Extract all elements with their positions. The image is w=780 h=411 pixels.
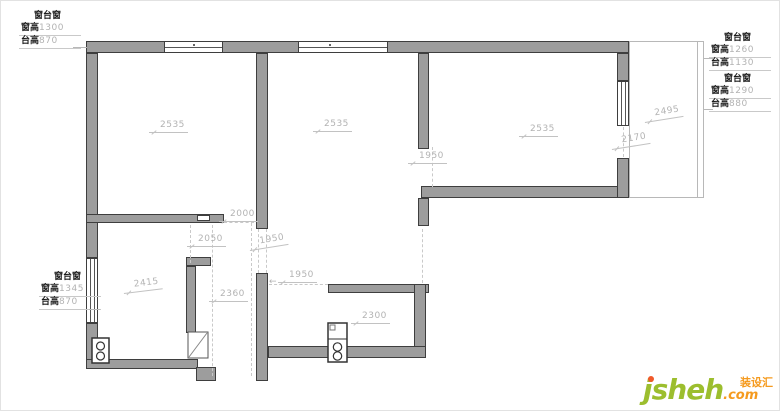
- wall-bottom-step: [196, 367, 216, 381]
- watermark-dot-icon: [648, 376, 654, 382]
- wall-right-upper: [617, 53, 629, 81]
- window-right: [617, 81, 629, 126]
- sill-height-row: 台高870: [19, 36, 81, 49]
- window-dot: [193, 44, 195, 46]
- window-label-bottom-left: 窗台窗 窗高1345 台高870: [39, 272, 101, 310]
- opening-dashed-edge: [422, 229, 423, 283]
- dim-room1: 2535: [149, 120, 188, 133]
- dim-hall-opening: 1950: [248, 232, 288, 251]
- window-glass-line: [621, 82, 622, 125]
- dim-hall-width: 2360: [209, 289, 248, 302]
- wall-left-upper: [86, 53, 98, 258]
- wall-room3-bottom: [421, 186, 629, 198]
- leader-line: [704, 109, 713, 110]
- window-height-row: 窗高1345: [39, 284, 101, 297]
- watermark-badge: 装设汇: [740, 374, 773, 390]
- opening-dashed-line: [269, 284, 328, 285]
- window-top-2: [298, 41, 388, 53]
- dim-hall-door: 2000: [219, 209, 258, 222]
- floor-plan: 2535 2535 2535 1950 2495 2170 2000 2050 …: [0, 0, 780, 411]
- kitchen-stove-fixture-icon: [327, 322, 349, 364]
- dim-kitchen-opening: 1950: [278, 270, 317, 283]
- dim-room3: 2535: [519, 124, 558, 137]
- window-height-row: 窗高1260: [709, 45, 771, 58]
- wall-room2-room3-divider: [418, 53, 429, 149]
- window-glass-line: [625, 82, 626, 125]
- window-glass-line: [299, 47, 387, 48]
- window-dot: [329, 44, 331, 46]
- window-label-title: 窗台窗: [709, 33, 771, 45]
- window-label-title: 窗台窗: [39, 272, 101, 284]
- dim-mid-opening: 1950: [408, 151, 447, 164]
- window-top-1: [164, 41, 223, 53]
- window-label-right-lower: 窗台窗 窗高1290 台高880: [709, 74, 771, 112]
- sill-height-row: 台高880: [709, 99, 771, 112]
- wall-below-room3: [418, 198, 429, 226]
- window-height-row: 窗高1300: [19, 23, 81, 36]
- watermark: jsheh.com 装设汇: [631, 372, 779, 410]
- wall-right-lower: [617, 158, 629, 198]
- window-label-title: 窗台窗: [19, 11, 81, 23]
- dimension-arrow-icon: ←: [269, 278, 277, 287]
- sill-height-row: 台高1130: [709, 58, 771, 71]
- door-leaf: [187, 331, 209, 359]
- wall-center-lower: [256, 273, 268, 381]
- wall-closet-vertical: [186, 266, 196, 333]
- window-label-title: 窗台窗: [709, 74, 771, 86]
- wall-room1-room2-divider: [256, 53, 268, 229]
- dim-kitchen: 2300: [351, 311, 390, 324]
- balcony-inner-line: [697, 41, 698, 198]
- window-glass-line: [165, 47, 222, 48]
- leader-line: [73, 47, 87, 48]
- leader-line: [89, 309, 100, 310]
- opening-dashed-line: [224, 222, 254, 223]
- window-height-row: 窗高1290: [709, 86, 771, 99]
- window-label-top-left: 窗台窗 窗高1300 台高870: [19, 11, 81, 49]
- leader-line: [704, 58, 713, 59]
- dim-room2: 2535: [313, 119, 352, 132]
- window-label-right-upper: 窗台窗 窗高1260 台高1130: [709, 33, 771, 71]
- wall-notch: [197, 215, 210, 221]
- bathroom-fixture-icon: [91, 337, 111, 365]
- dim-closet: 2050: [187, 234, 226, 247]
- dim-room4: 2415: [122, 276, 162, 294]
- watermark-suffix: .com: [723, 388, 758, 403]
